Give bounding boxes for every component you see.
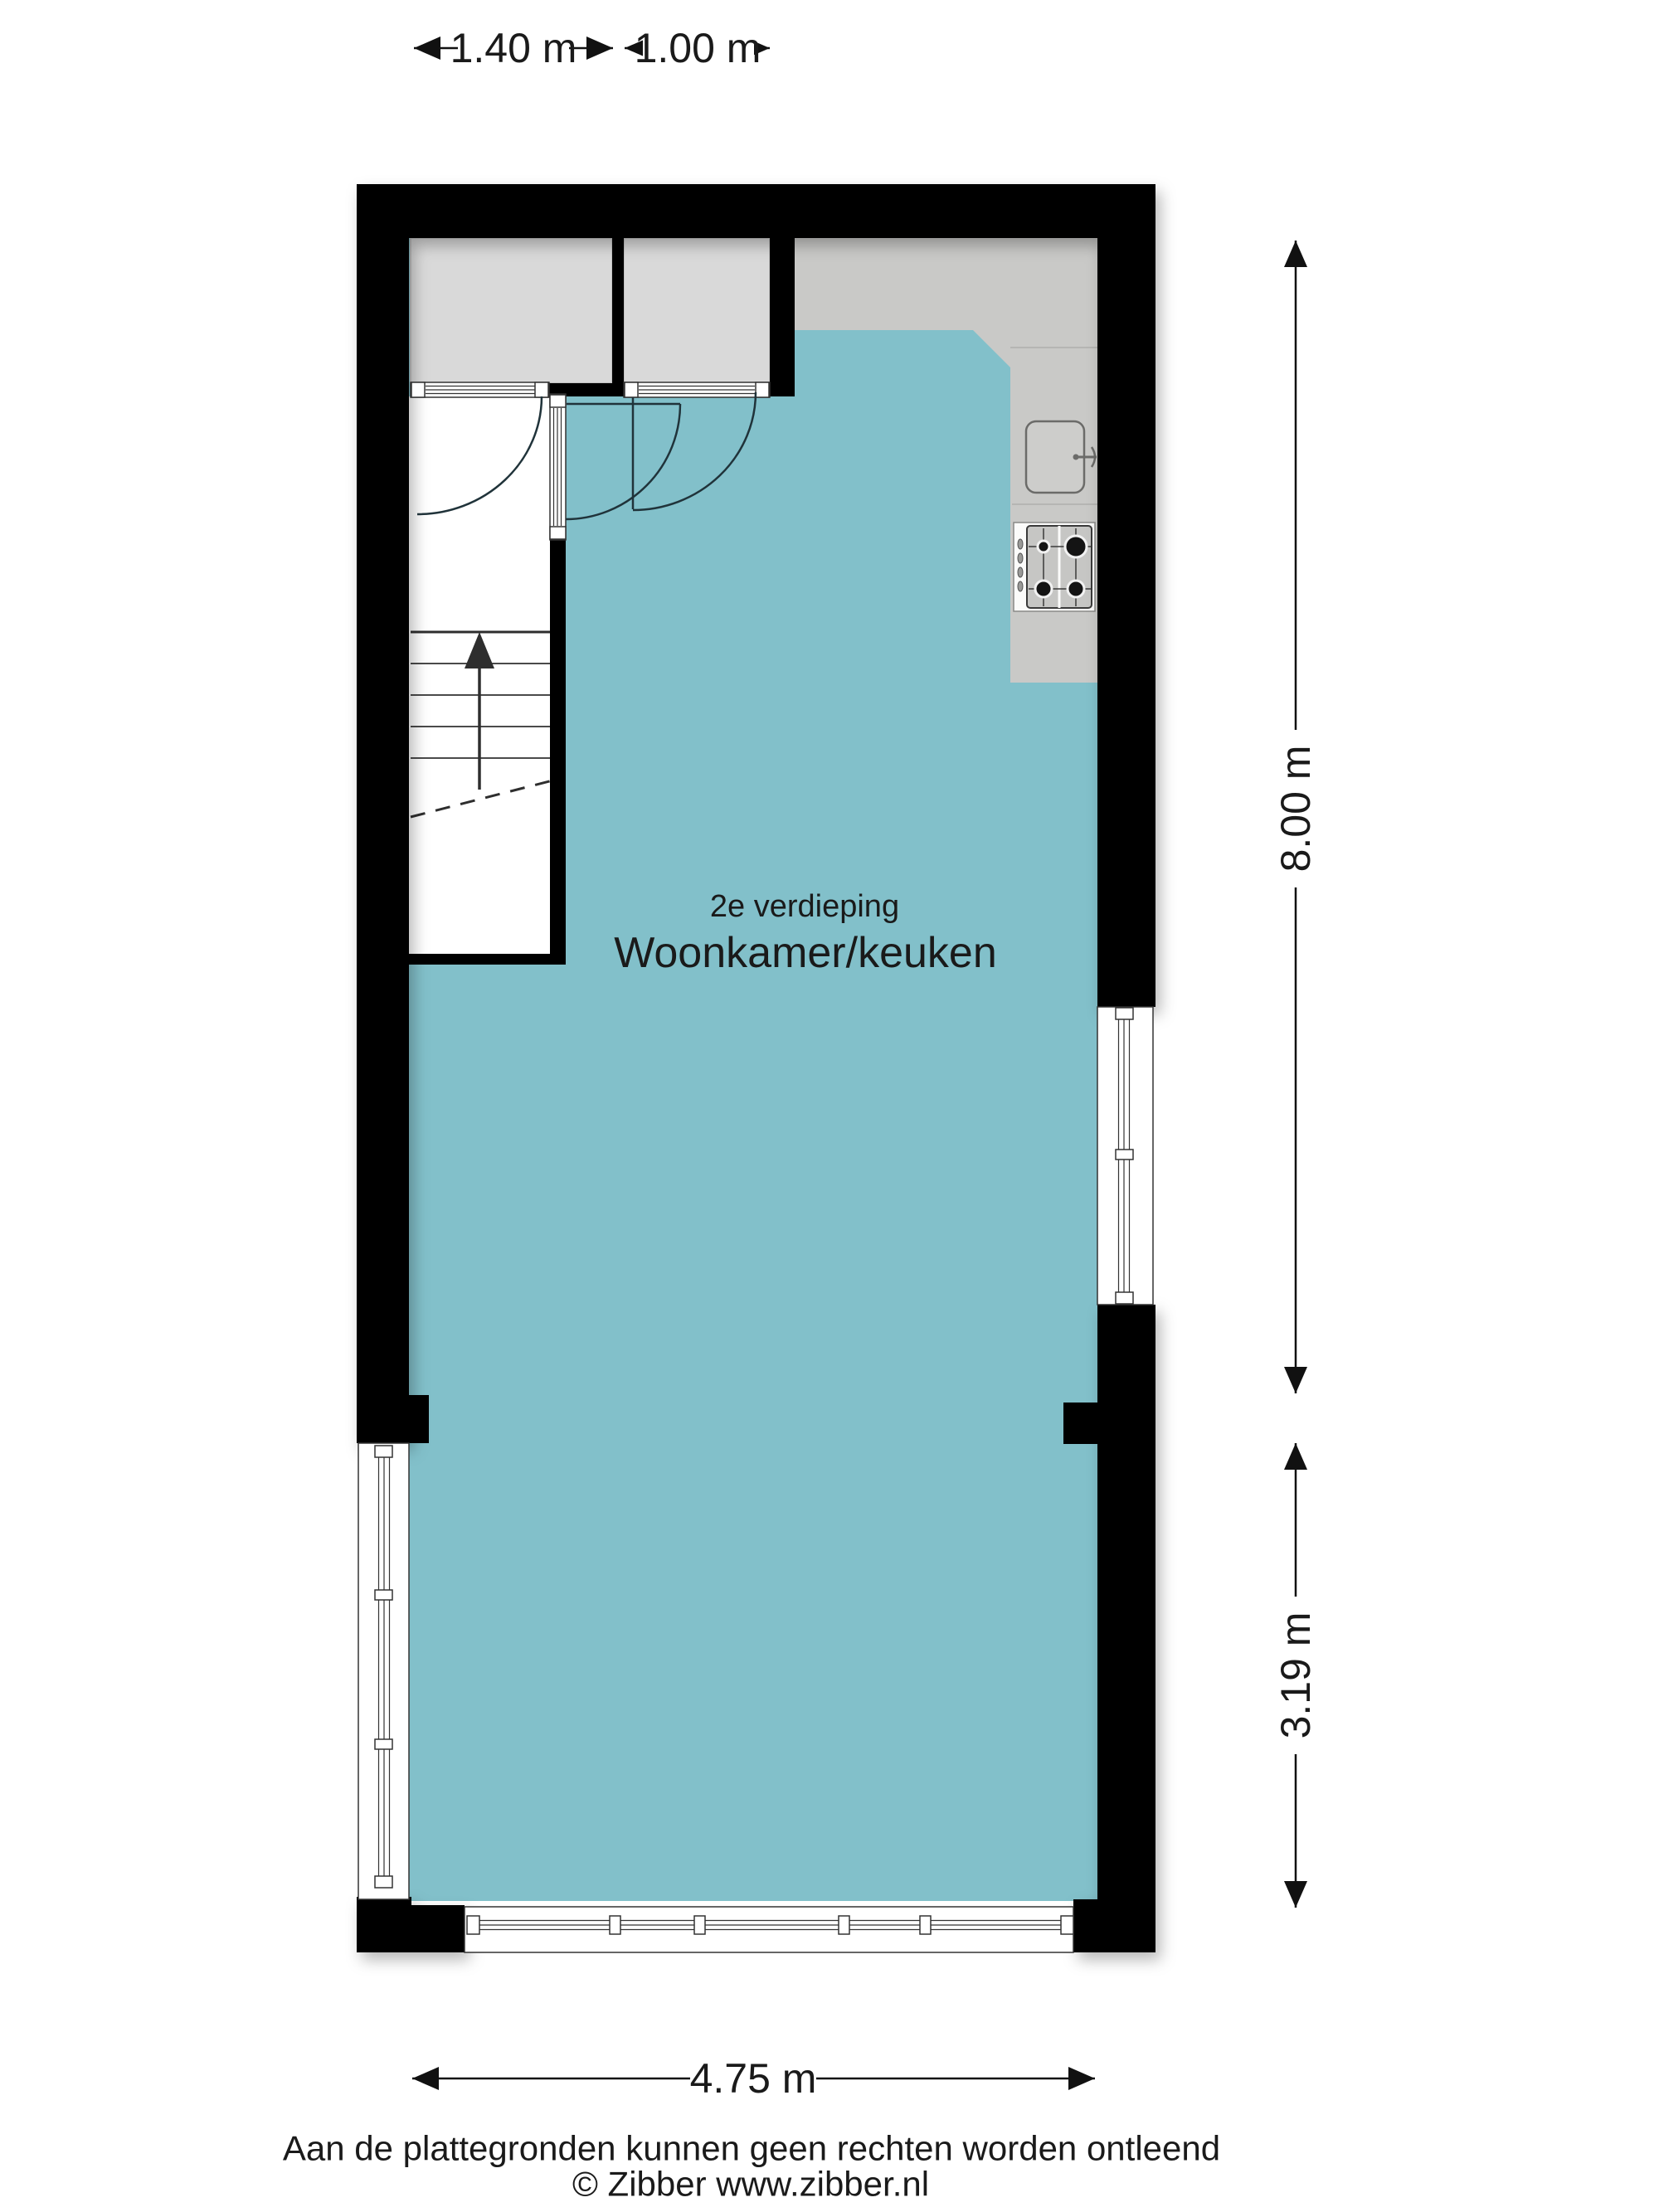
door-track-stairwell bbox=[550, 394, 566, 540]
dimension-label: 4.75 m bbox=[690, 2055, 817, 2102]
floor-plan: 2e verdieping Woonkamer/keuken 1.40 m 1.… bbox=[0, 0, 1659, 2212]
dimension-top-left: 1.40 m bbox=[414, 23, 613, 71]
wall-stairwell-south bbox=[409, 954, 566, 965]
wall-closet-right-side bbox=[770, 184, 795, 396]
wall-top bbox=[357, 184, 1155, 238]
arrow-left-icon bbox=[412, 2067, 439, 2090]
wall-right-lower bbox=[1097, 1305, 1155, 1952]
dimension-label: 8.00 m bbox=[1272, 746, 1319, 873]
footer-copyright: © Zibber www.zibber.nl bbox=[572, 2165, 929, 2204]
arrow-down-icon bbox=[1284, 1367, 1307, 1393]
footer: Aan de plattegronden kunnen geen rechten… bbox=[283, 2129, 1220, 2204]
closets bbox=[411, 238, 770, 383]
closet-right bbox=[624, 238, 770, 383]
arrow-down-icon bbox=[1284, 1881, 1307, 1908]
burner-icon bbox=[1038, 541, 1049, 552]
faucet-icon bbox=[1073, 455, 1079, 460]
wall-tab-right bbox=[1063, 1403, 1097, 1444]
wall-corner-bottom-left bbox=[357, 1905, 465, 1952]
arrow-right-icon bbox=[586, 36, 613, 60]
dimension-right-upper: 8.00 m bbox=[1272, 241, 1319, 1393]
wall-corner-bottom-right bbox=[1073, 1899, 1155, 1952]
dimension-label: 3.19 m bbox=[1272, 1612, 1319, 1739]
window-left bbox=[358, 1443, 409, 1899]
stove bbox=[1014, 523, 1095, 611]
dimension-bottom: 4.75 m bbox=[412, 2054, 1095, 2102]
burner-icon bbox=[1068, 581, 1084, 597]
wall-stairwell-east bbox=[550, 537, 566, 965]
arrow-up-icon bbox=[1284, 241, 1307, 267]
door-track-closet-left bbox=[411, 382, 549, 397]
window-right bbox=[1097, 1007, 1153, 1305]
arrow-right-icon bbox=[1068, 2067, 1095, 2090]
wall-left-upper bbox=[357, 184, 409, 1443]
room-floor-label: 2e verdieping bbox=[710, 889, 899, 924]
dimension-right-lower: 3.19 m bbox=[1272, 1443, 1319, 1908]
closet-left bbox=[411, 238, 612, 383]
dimension-top-right: 1.00 m bbox=[625, 23, 770, 71]
wall-tab-left bbox=[409, 1395, 429, 1443]
burner-icon bbox=[1065, 536, 1087, 557]
wall-closet-divider bbox=[612, 236, 624, 396]
door-track-closet-right bbox=[624, 382, 770, 397]
window-bottom bbox=[465, 1907, 1073, 1952]
floor-plan-page: 2e verdieping Woonkamer/keuken 1.40 m 1.… bbox=[0, 0, 1659, 2212]
arrow-left-icon bbox=[414, 36, 440, 60]
dimension-label: 1.00 m bbox=[635, 25, 761, 71]
footer-disclaimer: Aan de plattegronden kunnen geen rechten… bbox=[283, 2129, 1220, 2168]
wall-right-upper bbox=[1097, 184, 1155, 1007]
room-name-label: Woonkamer/keuken bbox=[614, 929, 997, 977]
burner-icon bbox=[1035, 581, 1052, 597]
dimension-label: 1.40 m bbox=[450, 25, 577, 71]
arrow-up-icon bbox=[1284, 1443, 1307, 1470]
